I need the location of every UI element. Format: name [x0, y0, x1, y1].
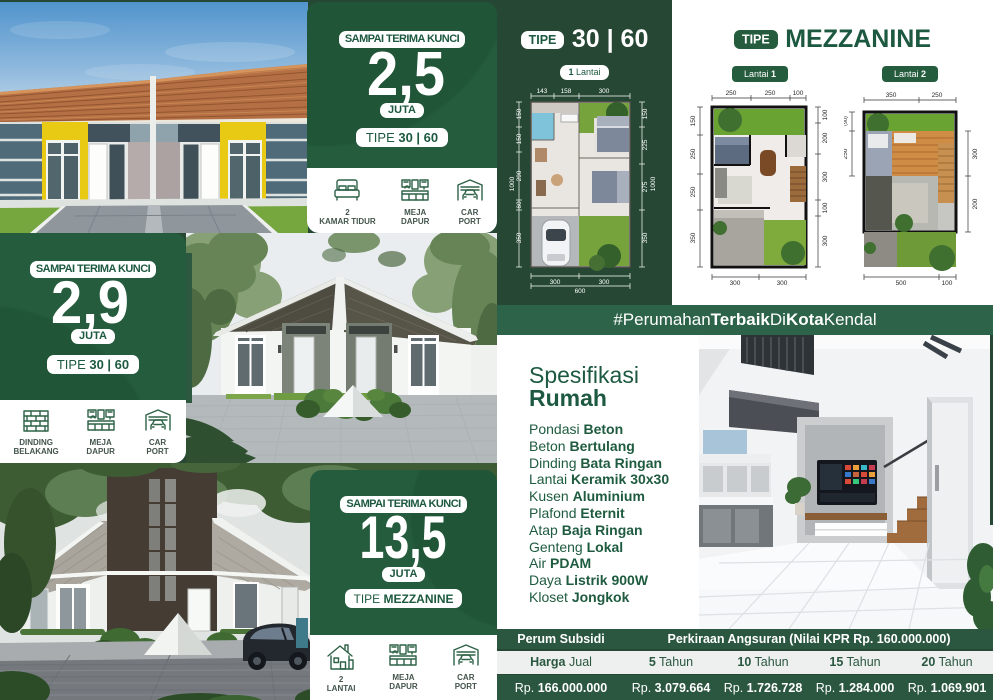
svg-text:250: 250 — [765, 90, 776, 97]
svg-text:250: 250 — [690, 148, 697, 159]
svg-text:350: 350 — [886, 92, 897, 99]
svg-text:250: 250 — [726, 90, 737, 97]
svg-text:200: 200 — [972, 198, 979, 209]
svg-text:300: 300 — [730, 280, 741, 287]
svg-text:1000: 1000 — [650, 176, 657, 191]
svg-text:150: 150 — [690, 115, 697, 126]
svg-text:250: 250 — [932, 92, 943, 99]
svg-text:100: 100 — [942, 280, 953, 287]
svg-text:300: 300 — [777, 280, 788, 287]
svg-text:350: 350 — [690, 232, 697, 243]
svg-text:600: 600 — [575, 288, 586, 293]
svg-text:143: 143 — [537, 88, 548, 95]
svg-text:290: 290 — [516, 170, 523, 181]
svg-text:(90): (90) — [844, 116, 849, 126]
svg-text:225: 225 — [642, 139, 649, 150]
svg-text:100: 100 — [822, 109, 829, 120]
svg-text:150: 150 — [516, 108, 523, 119]
svg-text:250: 250 — [844, 148, 849, 159]
svg-text:350: 350 — [516, 232, 523, 243]
svg-text:300: 300 — [550, 279, 561, 286]
svg-text:60: 60 — [516, 201, 523, 209]
svg-text:2,5: 2,5 — [367, 40, 445, 107]
svg-text:250: 250 — [690, 186, 697, 197]
svg-text:100: 100 — [822, 202, 829, 213]
svg-text:158: 158 — [561, 88, 572, 95]
svg-text:500: 500 — [896, 280, 907, 287]
svg-text:13,5: 13,5 — [360, 504, 447, 571]
svg-text:350: 350 — [642, 232, 649, 243]
svg-text:300: 300 — [599, 88, 610, 95]
svg-text:300: 300 — [822, 171, 829, 182]
svg-text:150: 150 — [642, 108, 649, 119]
svg-text:150: 150 — [516, 133, 523, 144]
svg-text:1000: 1000 — [509, 176, 516, 191]
svg-text:300: 300 — [972, 148, 979, 159]
svg-text:200: 200 — [822, 132, 829, 143]
svg-text:300: 300 — [822, 235, 829, 246]
svg-text:100: 100 — [793, 90, 804, 97]
svg-text:275: 275 — [642, 181, 649, 192]
svg-text:300: 300 — [599, 279, 610, 286]
svg-text:2,9: 2,9 — [51, 269, 129, 334]
